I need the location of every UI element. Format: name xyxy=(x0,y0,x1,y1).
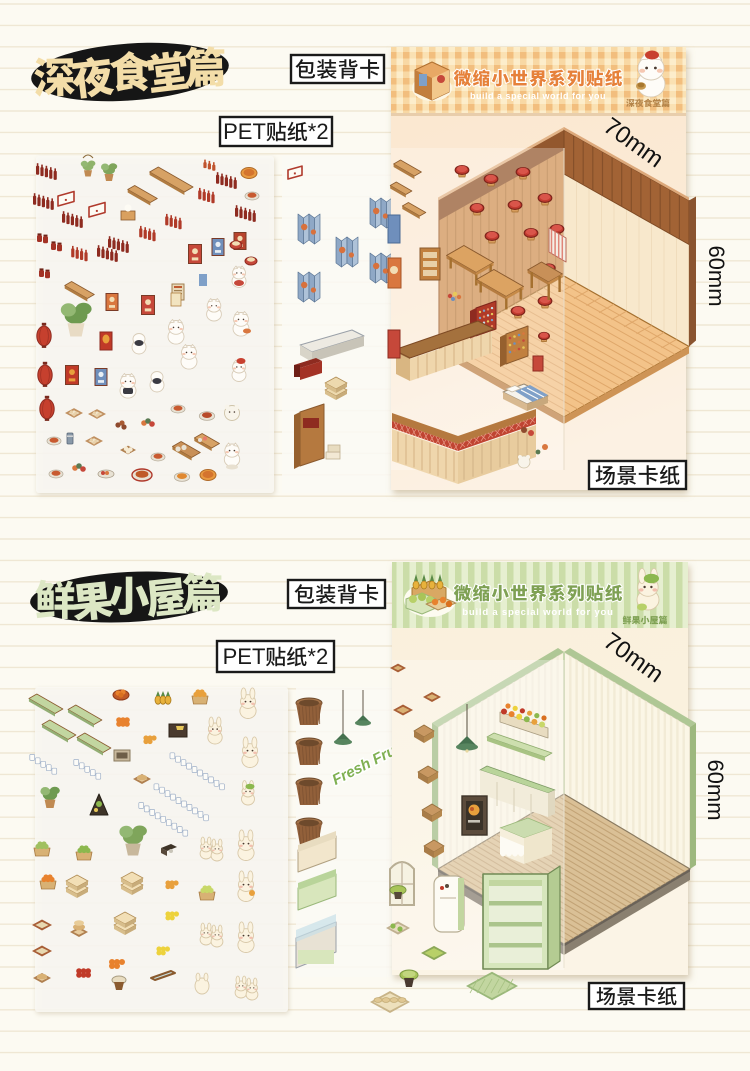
svg-text:*2: *2 xyxy=(308,119,329,144)
svg-text:PET: PET xyxy=(223,644,266,669)
svg-text:60mm: 60mm xyxy=(703,759,728,820)
svg-text:60mm: 60mm xyxy=(704,245,729,306)
svg-text:build a special world for you: build a special world for you xyxy=(470,91,606,101)
svg-text:*2: *2 xyxy=(307,644,328,669)
svg-text:build a special world for you: build a special world for you xyxy=(462,607,613,618)
svg-text:PET: PET xyxy=(223,119,266,144)
